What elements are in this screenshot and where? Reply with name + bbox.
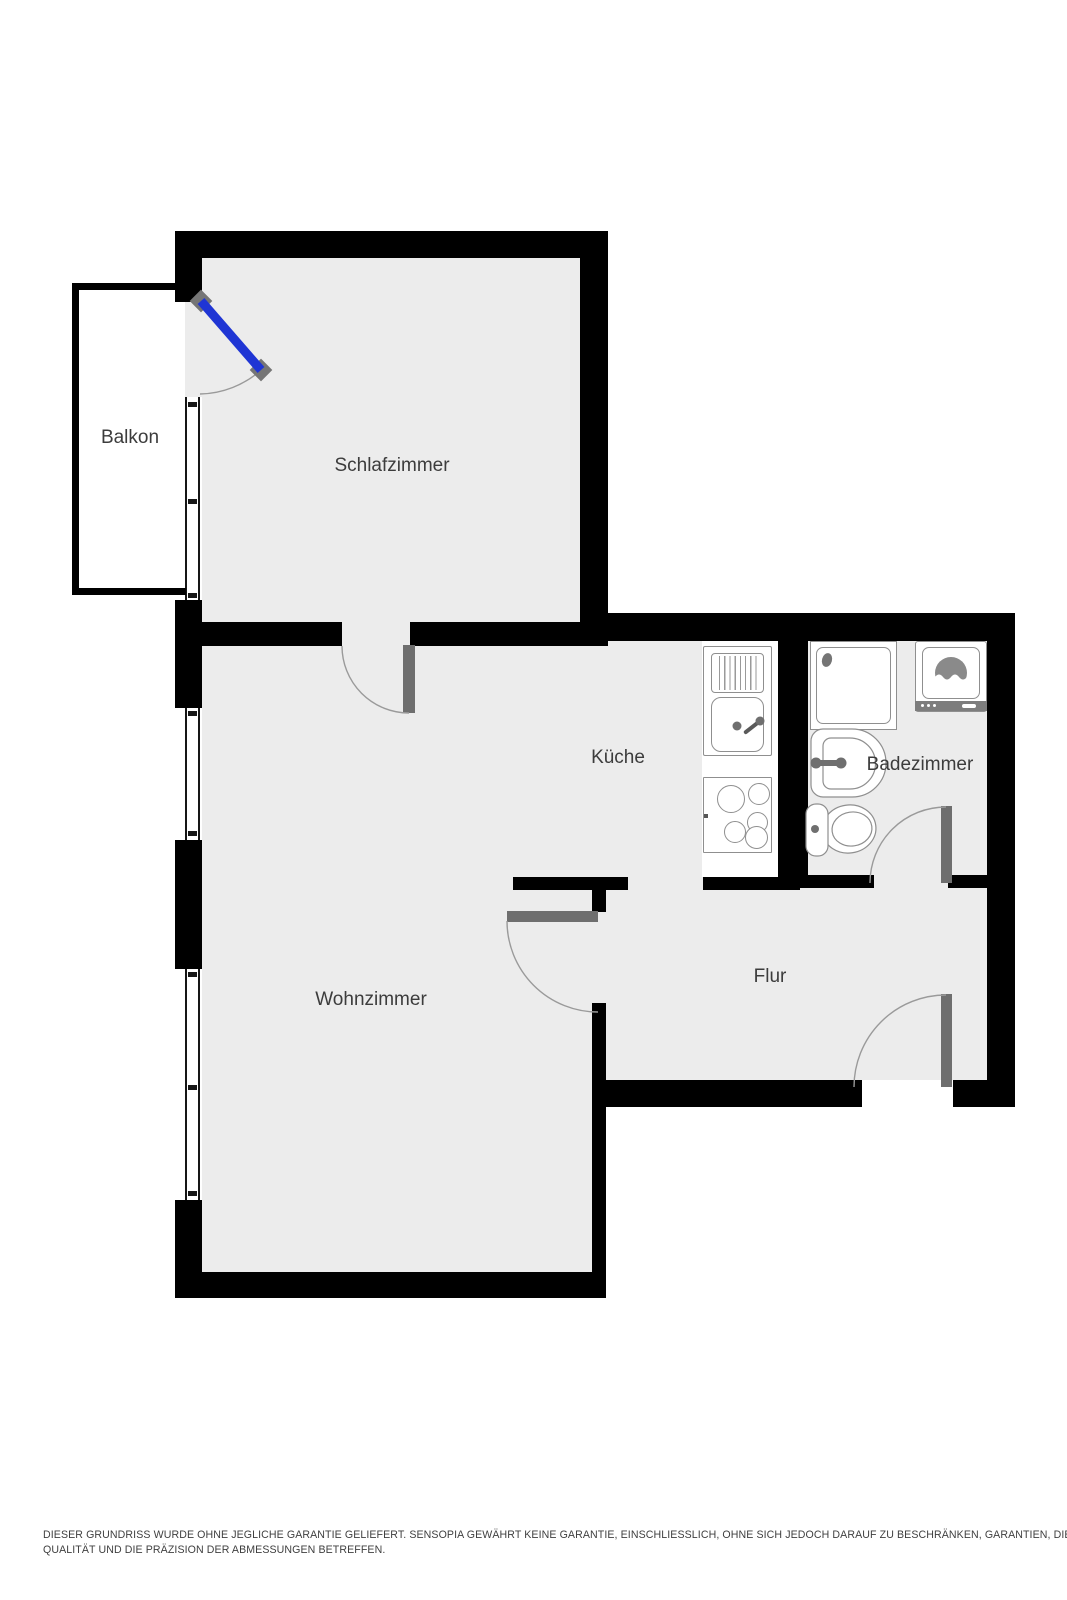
- shower-drain: [820, 652, 833, 668]
- kitchen-faucet: [733, 717, 765, 735]
- door-arc-wohnzimmer-flur: [507, 921, 598, 1012]
- room-label-wohnzimmer: Wohnzimmer: [315, 989, 427, 1011]
- bathroom-faucet-knob: [836, 758, 847, 769]
- disclaimer-line-2: QUALITÄT UND DIE PRÄZISION DER ABMESSUNG…: [43, 1543, 1067, 1558]
- balcony-door: [190, 290, 273, 382]
- plan-overlay: [0, 0, 1067, 1600]
- disclaimer-line-1: DIESER GRUNDRISS WURDE OHNE JEGLICHE GAR…: [43, 1528, 1067, 1543]
- room-label-balkon: Balkon: [101, 427, 159, 449]
- door-arc-balcony: [200, 370, 261, 394]
- room-label-badezimmer: Badezimmer: [867, 754, 974, 776]
- disclaimer-text: DIESER GRUNDRISS WURDE OHNE JEGLICHE GAR…: [43, 1528, 1067, 1558]
- bathroom-faucet-knob: [811, 758, 822, 769]
- floor-plan: Balkon Schlafzimmer Küche Badezimmer Woh…: [0, 0, 1067, 1600]
- door-arc-badezimmer: [870, 807, 946, 883]
- toilet-button: [811, 825, 819, 833]
- balcony-door-leaf: [201, 301, 261, 370]
- washing-machine-drum: [935, 657, 967, 691]
- door-arc-schlafzimmer: [342, 646, 409, 713]
- room-label-flur: Flur: [754, 966, 787, 988]
- room-label-schlafzimmer: Schlafzimmer: [334, 455, 449, 477]
- room-label-kueche: Küche: [591, 747, 645, 769]
- door-arc-entrance: [854, 995, 946, 1087]
- toilet: [806, 801, 879, 856]
